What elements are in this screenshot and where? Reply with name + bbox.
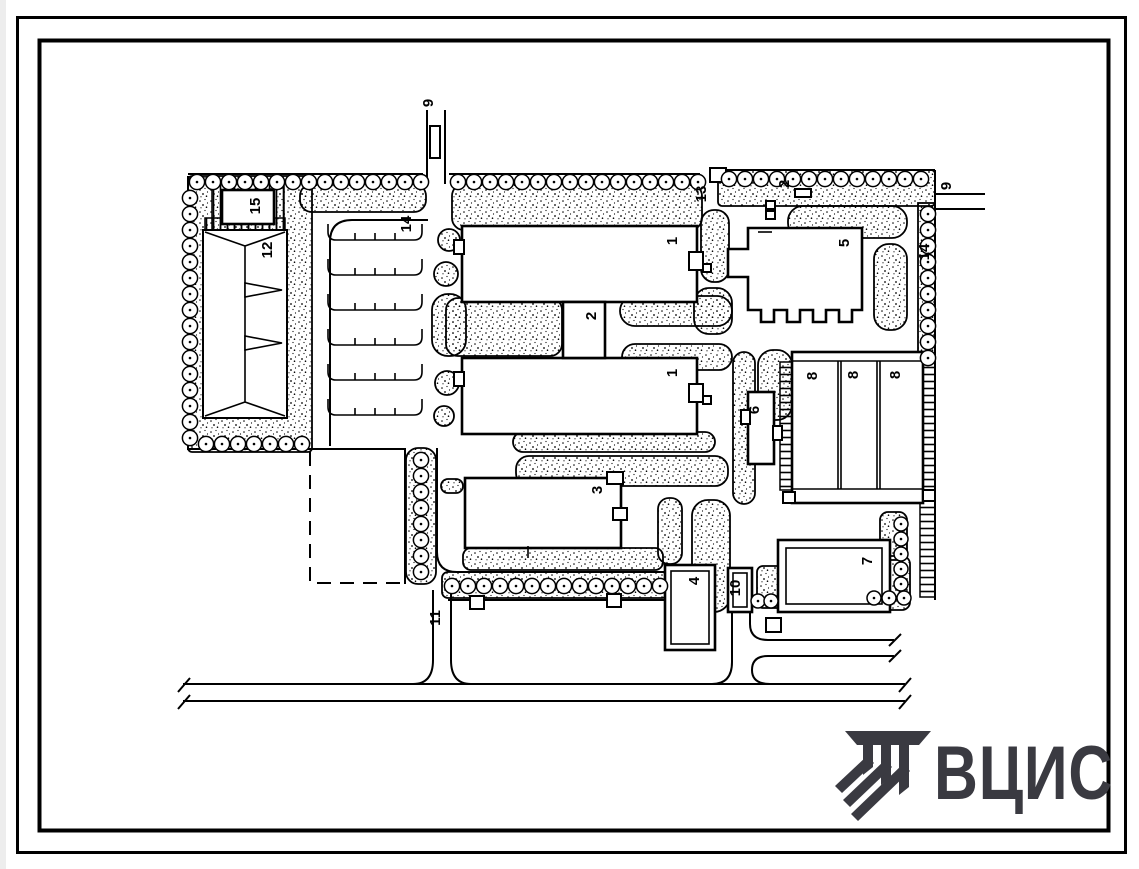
label-structure-10: 10 [727,580,744,597]
drawing-sheet: 9 15 12 14 1 2 13 2 5 9 14 1 6 8 8 8 3 4… [0,0,1139,869]
label-building-1-upper: 1 [664,237,681,245]
shaft-marker-a [766,201,775,209]
label-structure-13: 13 [693,186,710,203]
building-1-upper [462,226,697,302]
label-building-7: 7 [859,557,876,565]
label-structure-2-small: 2 [776,180,793,188]
label-strip-14-right: 14 [916,243,933,260]
label-road-11: 11 [427,610,444,626]
label-structure-15: 15 [247,198,264,215]
label-building-5: 5 [836,239,853,247]
parking-area-14 [328,220,428,446]
label-parking-14: 14 [398,215,415,232]
label-building-1-lower: 1 [664,369,681,377]
tree-row-top-left [189,174,428,189]
structure-6 [748,392,774,464]
vcis-logo-text: ВЦИС [934,731,1113,816]
label-area-12: 12 [259,242,276,259]
label-structure-6: 6 [746,406,763,414]
link-2 [563,302,605,358]
structure-2-marker [795,189,811,197]
building-1-lower [462,358,697,434]
label-garage-8-c: 8 [887,371,904,379]
scan-edge-artifact [0,0,6,869]
label-road-9-top: 9 [420,99,437,107]
label-building-4: 4 [686,576,703,585]
label-link-2: 2 [583,312,600,320]
label-garage-8-b: 8 [845,371,862,379]
shaft-marker-b [766,211,775,219]
vcis-flag-icon [835,731,931,821]
vcis-logo: ВЦИС [835,731,1113,821]
label-road-9-right: 9 [938,182,955,190]
label-garage-8-a: 8 [804,372,821,380]
reserved-area-dashed-boundary [310,452,405,583]
tree-column-right-lower [894,517,908,591]
tree-cluster-bottom-right [867,591,911,605]
label-building-3: 3 [589,486,606,494]
site-plan-svg: 9 15 12 14 1 2 13 2 5 9 14 1 6 8 8 8 3 4… [0,0,1139,869]
